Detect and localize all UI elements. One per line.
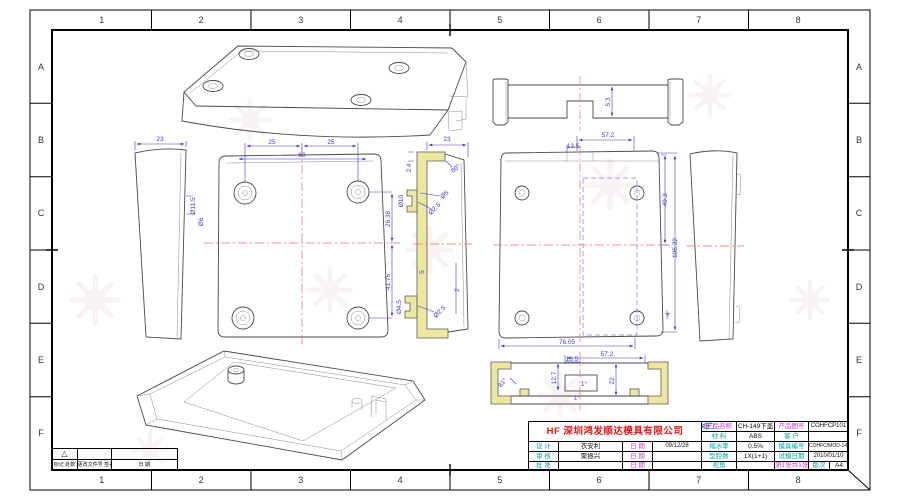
checker-name: 聚振兴 xyxy=(559,452,623,462)
revision-col-date: 日 期 xyxy=(112,460,177,471)
grid-col-label: 6 xyxy=(589,473,609,487)
svg-text:41.75: 41.75 xyxy=(385,273,392,290)
title-block: HF 深圳鸿发顺达模具有限公司 设 计 衣安利 日 期 09/12/28 审 核… xyxy=(528,421,848,470)
grid-row-label: E xyxy=(851,353,867,367)
grid-row-label: B xyxy=(851,133,867,147)
designer-label: 设 计 xyxy=(529,442,559,452)
grid-col-label: 4 xyxy=(390,473,410,487)
watermark-pattern xyxy=(72,76,829,467)
revision-col-mark: 标记 处数 xyxy=(52,460,78,471)
svg-text:49.3: 49.3 xyxy=(662,193,669,206)
mold-no-value: COHFC/MOD-149 xyxy=(809,442,848,452)
svg-text:5: 5 xyxy=(419,270,426,274)
designer-name: 衣安利 xyxy=(559,442,623,452)
grid-col-label: 3 xyxy=(291,473,311,487)
iso-view-bottom xyxy=(137,351,425,460)
approve-date xyxy=(653,462,701,471)
grid-row-label: F xyxy=(851,426,867,440)
check-date xyxy=(653,452,701,462)
grid-row-label: C xyxy=(851,206,867,220)
svg-text:1°: 1° xyxy=(581,380,588,388)
cavity-label: 型腔数 xyxy=(702,452,737,462)
svg-text:Ø5: Ø5 xyxy=(439,189,450,200)
grid-col-label: 2 xyxy=(191,473,211,487)
material-label: 材 料 xyxy=(702,432,737,442)
svg-text:60: 60 xyxy=(298,152,306,159)
trial-date-label: 试模日期 xyxy=(775,452,809,462)
grid-row-label: D xyxy=(851,280,867,294)
title-block-right: 产品名称 CH-149下盖 产品图号 COHFCP101 材 料 ABS 客 户… xyxy=(701,422,848,469)
grid-col-label: 1 xyxy=(92,473,112,487)
svg-text:25: 25 xyxy=(327,139,335,146)
grid-row-label: B xyxy=(33,133,49,147)
grid-col-label: 7 xyxy=(689,13,709,27)
revision-label: 版次 xyxy=(809,462,830,471)
grid-row-label: D xyxy=(33,280,49,294)
customer-value xyxy=(809,432,848,442)
grid-col-label: 4 xyxy=(390,13,410,27)
svg-text:22: 22 xyxy=(609,377,616,385)
grid-col-label: 1 xyxy=(92,13,112,27)
projection-symbols xyxy=(737,462,775,471)
svg-text:23: 23 xyxy=(443,136,451,143)
svg-text:23: 23 xyxy=(156,136,164,143)
company-name: HF 深圳鸿发顺达模具有限公司 xyxy=(529,422,701,442)
revision-block: △ 标记 处数 更改文件号 签名 日 期 xyxy=(52,448,178,470)
grid-row-label: C xyxy=(33,206,49,220)
design-date: 09/12/28 xyxy=(653,442,701,452)
svg-text:57.2: 57.2 xyxy=(601,351,614,358)
shrinkage-label: 缩水率 xyxy=(702,442,737,452)
customer-label: 客 户 xyxy=(775,432,809,442)
grid-row-label: A xyxy=(851,60,867,74)
svg-text:26.38: 26.38 xyxy=(385,210,392,227)
iso-view-top xyxy=(182,46,468,137)
shrinkage-value: 0.5% xyxy=(737,442,775,452)
grid-col-label: 8 xyxy=(788,13,808,27)
paper-size: A4 xyxy=(830,462,848,471)
svg-text:13.5: 13.5 xyxy=(566,356,579,363)
svg-text:1°: 1° xyxy=(574,394,581,402)
grid-row-label: E xyxy=(33,353,49,367)
trial-date-value: 2010/01/10 xyxy=(809,452,848,462)
svg-text:Ø2.5: Ø2.5 xyxy=(427,201,442,216)
grid-col-label: 7 xyxy=(689,473,709,487)
product-no-label: 产品图号 xyxy=(775,422,809,432)
svg-text:60°: 60° xyxy=(449,162,462,175)
svg-text:13.5: 13.5 xyxy=(567,143,580,150)
grid-row-label: A xyxy=(33,60,49,74)
grid-col-label: 5 xyxy=(490,13,510,27)
grid-col-label: 2 xyxy=(191,13,211,27)
product-name-value: CH-149下盖 xyxy=(737,422,775,432)
revision-triangle-icon: △ xyxy=(52,449,78,460)
view-angle-label: 视角 xyxy=(702,462,737,471)
section-view-side: 23 2.4 60° Ø10 Ø2.5 Ø5 5 2 Ø4.5 Ø2.5 xyxy=(396,136,472,338)
svg-text:Ø10: Ø10 xyxy=(398,194,405,207)
title-block-left: HF 深圳鸿发顺达模具有限公司 设 计 衣安利 日 期 09/12/28 审 核… xyxy=(529,422,701,469)
svg-text:Ø2.5: Ø2.5 xyxy=(432,304,447,319)
drawing-sheet: { "grid": {"cols":["1","2","3","4","5","… xyxy=(0,0,900,500)
svg-text:2: 2 xyxy=(454,288,461,292)
svg-text:2.4: 2.4 xyxy=(406,163,413,172)
svg-text:5.3: 5.3 xyxy=(605,97,612,106)
svg-text:Ø4.5: Ø4.5 xyxy=(396,300,403,314)
svg-text:25: 25 xyxy=(268,139,276,146)
date-label: 日 期 xyxy=(623,442,653,452)
material-value: ABS xyxy=(737,432,775,442)
svg-text:Ø6: Ø6 xyxy=(198,217,205,226)
grid-col-label: 3 xyxy=(291,13,311,27)
revision-col-file: 更改文件号 签名 xyxy=(78,460,112,471)
approver-label: 批 准 xyxy=(529,462,559,471)
front-view-top: 5.3 xyxy=(493,76,683,130)
svg-text:Ø11.5: Ø11.5 xyxy=(190,197,197,215)
date-label: 日 期 xyxy=(623,462,653,471)
approver-name xyxy=(559,462,623,471)
plan-view-top: 57.2 13.5 49.3 105.32 76.05 4 xyxy=(493,132,679,349)
date-label: 日 期 xyxy=(623,452,653,462)
cavity-value: 1X(1+1) xyxy=(737,452,775,462)
svg-text:4: 4 xyxy=(665,312,672,316)
mold-no-label: 模具编号 xyxy=(775,442,809,452)
side-view-left: 23 Ø11.5 Ø6 xyxy=(135,136,205,339)
grid-col-label: 5 xyxy=(490,473,510,487)
svg-text:76.05: 76.05 xyxy=(559,339,576,346)
svg-text:105.32: 105.32 xyxy=(672,238,679,258)
sheet-count: 第1张共1张 xyxy=(775,462,809,471)
grid-row-label: F xyxy=(33,426,49,440)
checker-label: 审 核 xyxy=(529,452,559,462)
grid-col-label: 6 xyxy=(589,13,609,27)
svg-text:57.2: 57.2 xyxy=(602,132,615,139)
section-view-front: 57.2 13.5 12.7 1° 1° 81° 22 xyxy=(491,351,668,410)
product-no-value: COHFCP101 xyxy=(809,422,848,432)
side-view-right xyxy=(686,151,744,341)
plan-view-bottom: 25 25 60 26.38 41.75 xyxy=(204,139,402,345)
grid-col-label: 8 xyxy=(788,473,808,487)
svg-text:12.7: 12.7 xyxy=(551,371,558,384)
